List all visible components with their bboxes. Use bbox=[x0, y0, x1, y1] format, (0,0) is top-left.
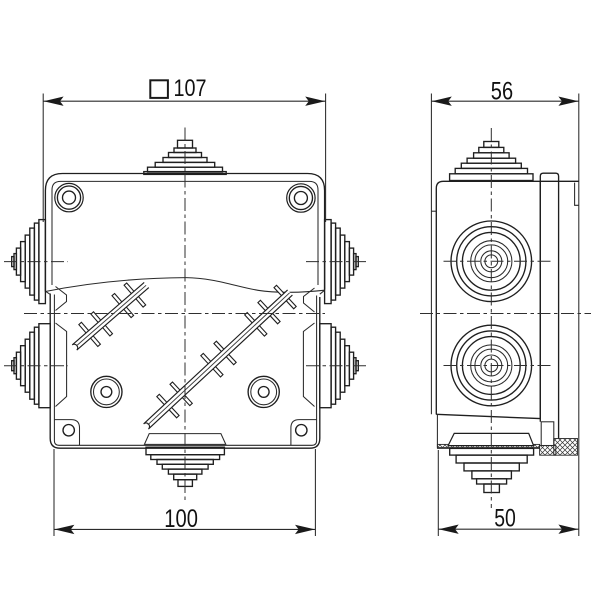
svg-text:50: 50 bbox=[494, 505, 516, 533]
svg-text:100: 100 bbox=[164, 505, 198, 533]
svg-text:56: 56 bbox=[491, 78, 513, 106]
svg-text:107: 107 bbox=[174, 75, 207, 102]
